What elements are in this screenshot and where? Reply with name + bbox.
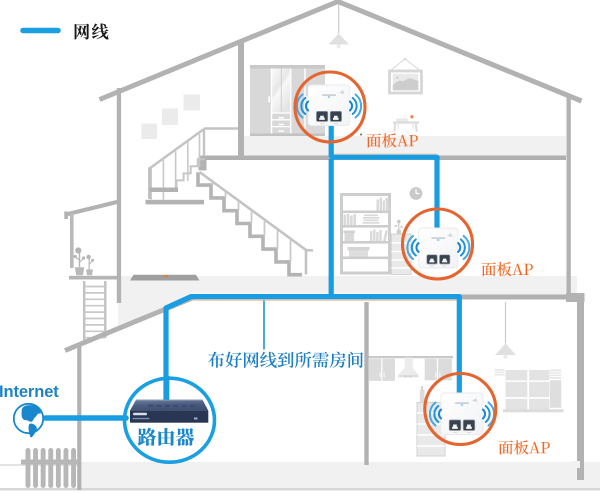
svg-text:Internet: Internet: [0, 383, 59, 401]
